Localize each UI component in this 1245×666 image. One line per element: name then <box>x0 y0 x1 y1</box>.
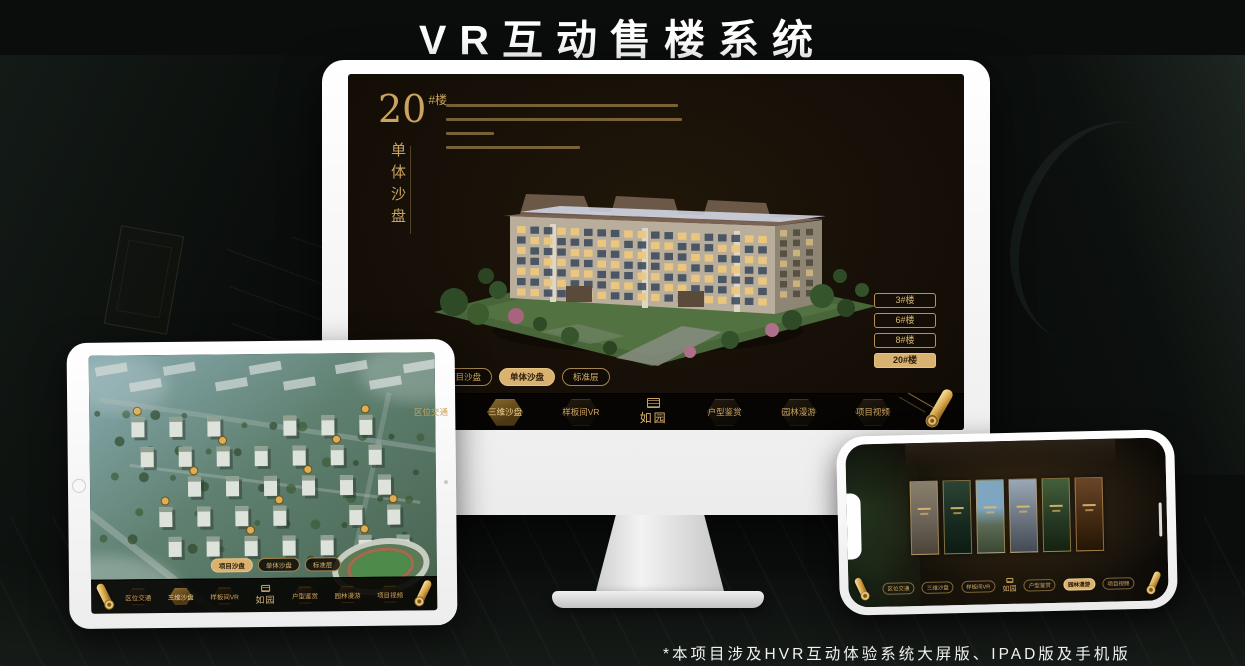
phone-menu-bar: 区位交通 三维沙盘 样板间VR 如园 户型鉴赏 园林漫游 项目视频 <box>882 571 1134 601</box>
brand-logo[interactable]: 如园 <box>640 398 668 426</box>
tab-standard-floor[interactable]: 标准层 <box>305 557 341 571</box>
home-indicator <box>1159 502 1163 536</box>
brand-emblem-icon <box>647 398 660 408</box>
menu-item-showroom-vr[interactable]: 样板间VR <box>961 580 995 593</box>
menu-item-floorplans[interactable]: 户型鉴赏 <box>1024 579 1056 592</box>
tab-single-sandbox[interactable]: 单体沙盘 <box>258 558 300 572</box>
menu-item-transport[interactable]: 区位交通 <box>882 582 914 595</box>
tab-project-sandbox[interactable]: 项目沙盘 <box>211 558 253 572</box>
menu-item-floorplans[interactable]: 户型鉴赏 <box>292 590 318 600</box>
sandbox-sub-tabs: 项目沙盘 单体沙盘 标准层 <box>211 557 341 572</box>
tablet-screen: 项目沙盘 单体沙盘 标准层 区位交通 三维沙盘 样板间VR 如园 户型鉴赏 园林… <box>89 352 438 614</box>
phone-notch <box>846 493 861 559</box>
scroll-icon[interactable] <box>1144 570 1162 596</box>
brand-logo[interactable]: 如园 <box>1002 578 1016 594</box>
tab-single-sandbox[interactable]: 单体沙盘 <box>499 368 555 386</box>
menu-item-transport[interactable]: 区位交通 <box>414 406 448 418</box>
background-art <box>975 55 1245 475</box>
menu-item-garden-tour[interactable]: 园林漫游 <box>1063 578 1095 591</box>
scene-gallery <box>910 477 1105 555</box>
sandbox-sub-tabs: 项目沙盘 单体沙盘 标准层 <box>436 368 610 386</box>
menu-item-project-video[interactable]: 项目视频 <box>1102 577 1134 590</box>
headline-subtitle: 单体沙盘 <box>388 142 409 230</box>
monitor-base <box>552 591 764 608</box>
menu-item-garden-tour[interactable]: 园林漫游 <box>782 406 816 418</box>
floor-button-group: 3#楼 6#楼 8#楼 20#楼 <box>874 293 936 368</box>
brand-emblem-icon <box>1006 578 1013 583</box>
subtitle-rule <box>410 146 411 234</box>
menu-item-project-video[interactable]: 项目视频 <box>377 589 403 599</box>
brand-logo[interactable]: 如园 <box>255 585 275 606</box>
scroll-icon[interactable] <box>921 385 958 430</box>
footnote: *本项目涉及HVR互动体验系统大屏版、IPAD版及手机版 <box>663 642 1131 664</box>
menu-item-transport[interactable]: 区位交通 <box>125 592 151 602</box>
phone-screen: 区位交通 三维沙盘 样板间VR 如园 户型鉴赏 园林漫游 项目视频 <box>845 437 1169 607</box>
menu-item-3d-sandbox[interactable]: 三维沙盘 <box>168 591 194 601</box>
tablet-menu-bar: 区位交通 三维沙盘 样板间VR 如园 户型鉴赏 园林漫游 项目视频 <box>91 576 437 614</box>
tablet-device: 项目沙盘 单体沙盘 标准层 区位交通 三维沙盘 样板间VR 如园 户型鉴赏 园林… <box>67 339 458 629</box>
background-sign <box>104 225 184 335</box>
floor-button-6[interactable]: 6#楼 <box>874 313 936 328</box>
tab-standard-floor[interactable]: 标准层 <box>562 368 610 386</box>
menu-item-floorplans[interactable]: 户型鉴赏 <box>708 406 742 418</box>
phone-device: 区位交通 三维沙盘 样板间VR 如园 户型鉴赏 园林漫游 项目视频 <box>836 429 1178 616</box>
scene-panel[interactable] <box>943 480 973 555</box>
scene-panel[interactable] <box>976 479 1006 554</box>
aerial-masterplan <box>89 352 438 614</box>
scene-panel[interactable] <box>1074 477 1104 552</box>
brand-emblem-icon <box>261 585 270 592</box>
floor-button-3[interactable]: 3#楼 <box>874 293 936 308</box>
building-render <box>420 126 886 384</box>
camera-dot <box>444 480 448 484</box>
monitor-stand <box>595 515 725 595</box>
page-title: VR互动售楼系统 <box>0 6 1245 66</box>
building-headline: 20#楼 <box>378 90 447 128</box>
scene-panel[interactable] <box>1042 478 1072 553</box>
menu-item-project-video[interactable]: 项目视频 <box>856 406 890 418</box>
scroll-icon[interactable] <box>852 576 871 602</box>
menu-item-3d-sandbox[interactable]: 三维沙盘 <box>488 406 522 418</box>
background-river <box>984 96 1236 373</box>
home-button[interactable] <box>72 479 86 493</box>
scene-panel[interactable] <box>1009 478 1039 553</box>
menu-item-3d-sandbox[interactable]: 三维沙盘 <box>922 581 954 594</box>
menu-item-garden-tour[interactable]: 园林漫游 <box>334 589 360 599</box>
floor-button-8[interactable]: 8#楼 <box>874 333 936 348</box>
menu-item-showroom-vr[interactable]: 样板间VR <box>210 591 239 601</box>
menu-item-showroom-vr[interactable]: 样板间VR <box>562 406 599 418</box>
floor-button-20[interactable]: 20#楼 <box>874 353 936 368</box>
scene-panel[interactable] <box>910 481 940 556</box>
